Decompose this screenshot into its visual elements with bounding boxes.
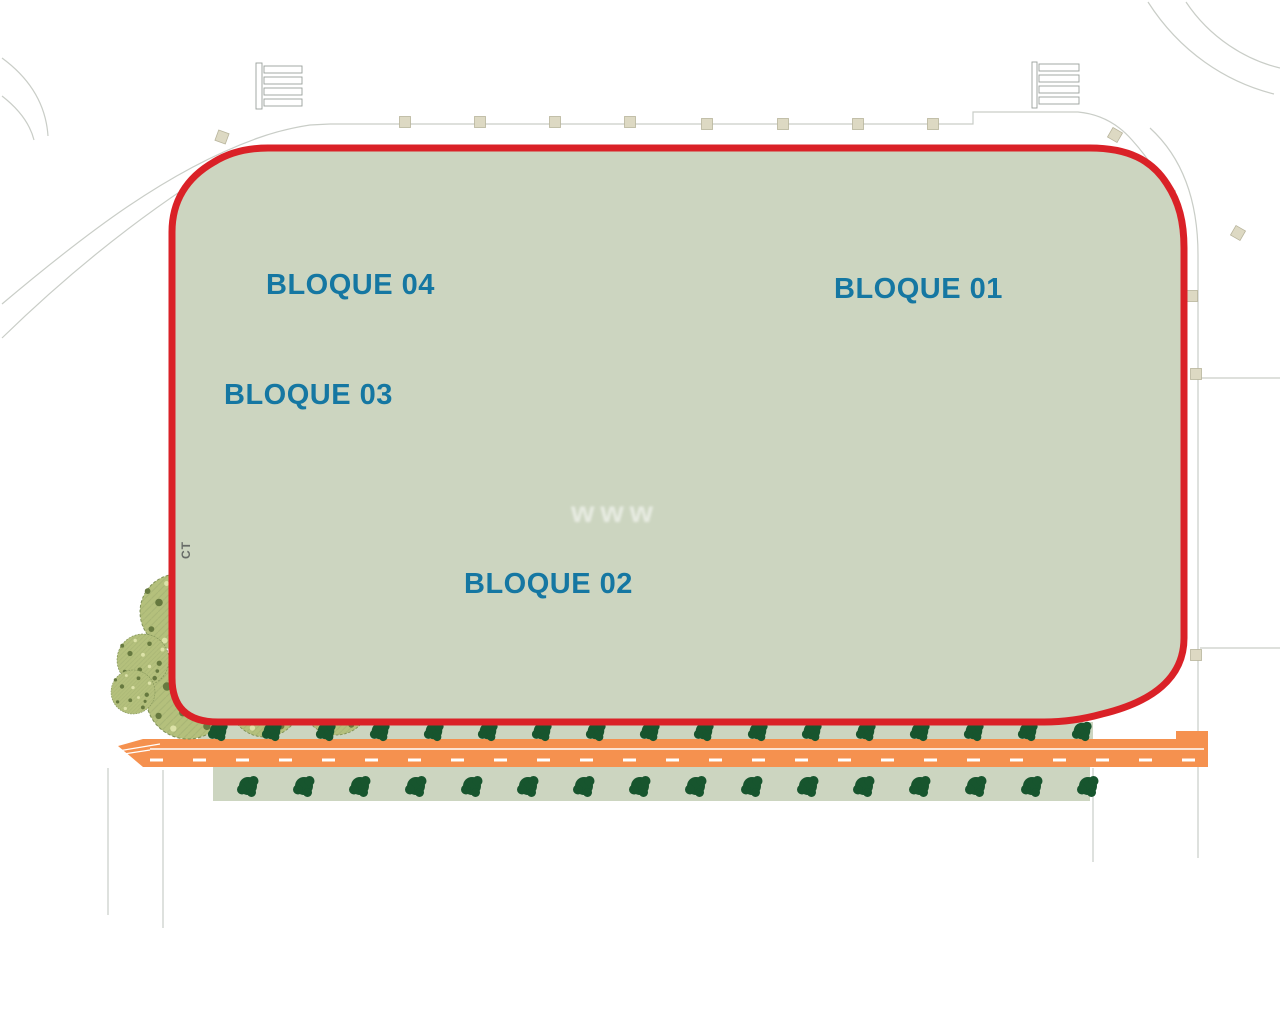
textured-tree-icon [111, 670, 155, 714]
street-marker [1187, 291, 1198, 302]
pergola-structure [1032, 62, 1079, 108]
label-bloque-03: BLOQUE 03 [224, 379, 393, 411]
watermark: www [570, 496, 659, 529]
street-marker [853, 119, 864, 130]
ct-label: CT [179, 541, 193, 559]
pergola-structure [256, 63, 302, 109]
label-bloque-01: BLOQUE 01 [834, 273, 1003, 305]
street-curve [1148, 2, 1274, 94]
label-bloque-04: BLOQUE 04 [266, 269, 435, 301]
street-marker [550, 117, 561, 128]
street-curve [2, 96, 34, 140]
street-curve [2, 58, 48, 136]
street-marker [400, 117, 411, 128]
street-marker [1230, 225, 1245, 240]
street-marker [1191, 369, 1202, 380]
street-edge-line [1200, 378, 1280, 648]
site-plan-page: www BLOQUE 04 BLOQUE 03 BLOQUE 02 BLOQUE… [0, 0, 1280, 1024]
site-boundary-line [172, 148, 1184, 722]
street-marker [1191, 650, 1202, 661]
street-marker [702, 119, 713, 130]
street-marker [625, 117, 636, 128]
site-plan-map: www BLOQUE 04 BLOQUE 03 BLOQUE 02 BLOQUE… [0, 0, 1280, 1024]
label-bloque-02: BLOQUE 02 [464, 568, 633, 600]
verge-strip [213, 767, 1090, 801]
street-marker [1107, 127, 1122, 142]
street-marker [215, 130, 229, 144]
street-marker [778, 119, 789, 130]
street-marker [475, 117, 486, 128]
street-marker [928, 119, 939, 130]
